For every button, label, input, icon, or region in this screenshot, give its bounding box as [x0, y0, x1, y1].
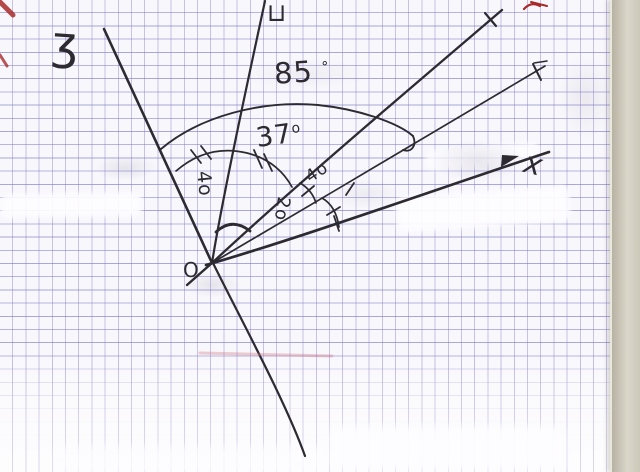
- ray-tip-tick-foot: [534, 61, 547, 63]
- angle-zu-label: 4o: [193, 170, 215, 198]
- red-corner-mark: [0, 2, 13, 15]
- angle-85-label: 85°: [273, 56, 330, 89]
- red-margin-mark: [0, 55, 7, 66]
- angle-inner-lower-label: 2o: [271, 195, 292, 222]
- degree-symbol: °: [321, 59, 329, 75]
- ray-down-line: [212, 261, 305, 456]
- ray-z-label: ʒ: [50, 19, 81, 67]
- angle-85-value: 85: [273, 54, 314, 91]
- vertex-label: O: [183, 260, 200, 280]
- ray-u-label: ⊔: [267, 0, 288, 25]
- ray-mid-right-line: [212, 66, 545, 263]
- angle-37-value: 37: [254, 118, 294, 154]
- equal-tick: [346, 183, 354, 195]
- pink-streak: [200, 353, 332, 356]
- ray-z-line: [104, 29, 212, 263]
- ray-x-line: [206, 152, 549, 265]
- vertex-arc: [216, 224, 250, 232]
- red-check-mark: [524, 4, 540, 9]
- scanned-notebook-page: ʒ ⊔ x O 85° 37o 4o 4o 2o: [0, 0, 640, 472]
